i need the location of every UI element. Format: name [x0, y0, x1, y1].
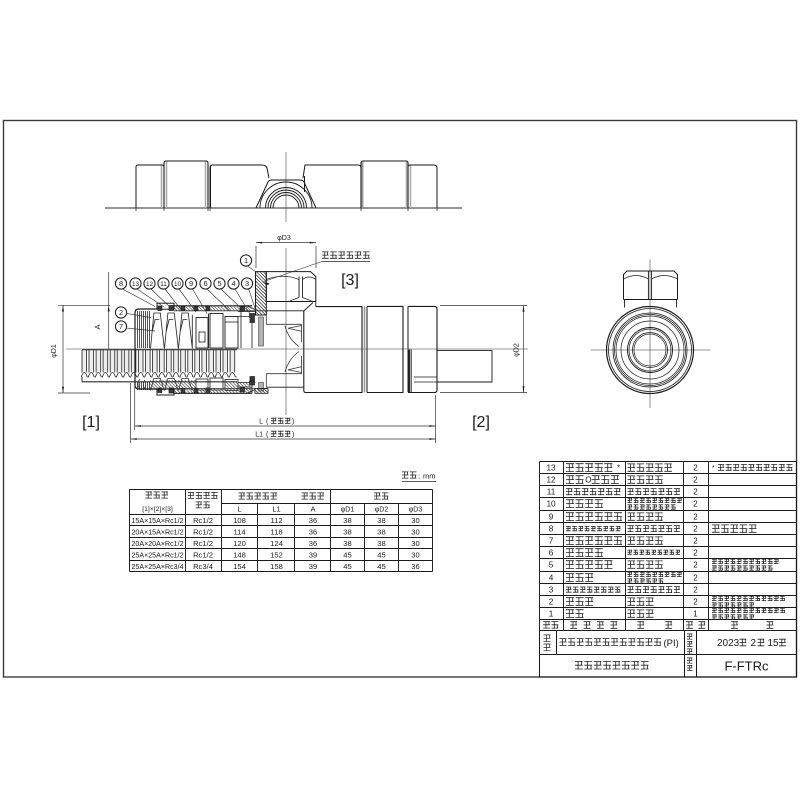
svg-text:20A×20A×Rc1/2: 20A×20A×Rc1/2: [131, 540, 183, 548]
svg-text:Rc1/2: Rc1/2: [193, 528, 213, 537]
svg-text:148: 148: [233, 551, 246, 560]
svg-text:7: 7: [549, 537, 554, 546]
svg-text:*: *: [712, 465, 715, 472]
svg-text:1: 1: [693, 610, 698, 619]
svg-text:30: 30: [411, 539, 419, 548]
svg-text:38: 38: [343, 516, 351, 525]
svg-text:2: 2: [693, 586, 698, 595]
svg-text:38: 38: [343, 528, 351, 537]
svg-text:7: 7: [119, 322, 123, 331]
svg-text:13: 13: [546, 464, 556, 473]
svg-text:[1]×[2]×[3]: [1]×[2]×[3]: [142, 506, 173, 513]
svg-text:4: 4: [549, 574, 554, 583]
svg-text:36: 36: [411, 562, 419, 571]
svg-text:2: 2: [693, 598, 698, 607]
svg-text:2: 2: [693, 561, 698, 570]
svg-text:11: 11: [160, 281, 167, 288]
svg-text:158: 158: [270, 562, 283, 571]
svg-text:25A×25A×Rc3/4: 25A×25A×Rc3/4: [131, 563, 183, 571]
svg-text:L1: L1: [255, 432, 263, 439]
svg-text:20A×15A×Rc1/2: 20A×15A×Rc1/2: [131, 529, 183, 537]
svg-text:Rc3/4: Rc3/4: [193, 562, 213, 571]
svg-text:38: 38: [343, 539, 351, 548]
svg-text:36: 36: [309, 516, 317, 525]
svg-text:13: 13: [132, 281, 140, 288]
svg-text:124: 124: [270, 539, 283, 548]
svg-text:9: 9: [549, 513, 554, 522]
svg-text:2: 2: [693, 513, 698, 522]
svg-text:): ): [292, 432, 294, 439]
svg-text:2: 2: [693, 537, 698, 546]
svg-text:φD1: φD1: [51, 344, 58, 358]
svg-text:30: 30: [411, 551, 419, 560]
svg-text:2: 2: [693, 549, 698, 558]
svg-text:45: 45: [343, 551, 351, 560]
svg-text:15A×15A×Rc1/2: 15A×15A×Rc1/2: [131, 517, 183, 525]
svg-text:*: *: [617, 464, 620, 473]
svg-text:φD2: φD2: [514, 343, 521, 357]
svg-text:2: 2: [693, 464, 698, 473]
svg-text:(PI): (PI): [664, 638, 679, 649]
svg-text:mm: mm: [423, 472, 436, 481]
svg-text:2: 2: [693, 525, 698, 534]
svg-text:39: 39: [309, 551, 317, 560]
svg-text:1: 1: [549, 610, 554, 619]
svg-text:12: 12: [546, 476, 556, 485]
svg-text:30: 30: [411, 528, 419, 537]
svg-text:4: 4: [231, 279, 235, 288]
svg-text:11: 11: [547, 488, 556, 497]
svg-text:45: 45: [377, 551, 385, 560]
svg-text:15: 15: [768, 638, 780, 649]
svg-text:2: 2: [693, 500, 698, 509]
svg-text:6: 6: [549, 549, 554, 558]
svg-text:Rc1/2: Rc1/2: [193, 551, 213, 560]
svg-text:38: 38: [377, 528, 385, 537]
svg-text:5: 5: [549, 561, 554, 570]
svg-text:2: 2: [549, 598, 554, 607]
svg-text:25A×25A×Rc1/2: 25A×25A×Rc1/2: [131, 552, 183, 560]
svg-text:39: 39: [309, 562, 317, 571]
svg-text:L: L: [259, 419, 263, 426]
svg-text:8: 8: [119, 279, 123, 288]
svg-text:2: 2: [119, 308, 123, 317]
svg-text:φD3: φD3: [277, 235, 291, 242]
svg-text:8: 8: [549, 525, 554, 534]
svg-text:5: 5: [217, 279, 221, 288]
svg-text:Rc1/2: Rc1/2: [193, 539, 213, 548]
svg-text:φD1: φD1: [341, 507, 355, 514]
svg-text:2: 2: [693, 574, 698, 583]
svg-text:): ): [292, 419, 294, 426]
svg-text:152: 152: [270, 551, 283, 560]
svg-text:6: 6: [203, 279, 207, 288]
svg-text:2: 2: [751, 638, 757, 649]
svg-text:1: 1: [244, 256, 248, 265]
svg-text:A: A: [310, 505, 315, 514]
svg-text:A: A: [93, 324, 102, 329]
svg-text:9: 9: [189, 279, 193, 288]
svg-text:L: L: [237, 505, 241, 514]
svg-text:10: 10: [546, 500, 556, 509]
svg-text:2023: 2023: [717, 638, 740, 649]
svg-text:154: 154: [233, 562, 246, 571]
svg-text:112: 112: [270, 516, 282, 525]
svg-text:36: 36: [309, 539, 317, 548]
svg-text:120: 120: [233, 539, 246, 548]
svg-text:[1]: [1]: [82, 414, 100, 431]
svg-text:L1: L1: [272, 505, 280, 514]
svg-text:45: 45: [377, 562, 385, 571]
svg-text:F-FTRc: F-FTRc: [724, 659, 769, 674]
svg-text:[2]: [2]: [472, 414, 490, 431]
svg-text:30: 30: [411, 516, 419, 525]
svg-text:2: 2: [693, 476, 698, 485]
svg-text:108: 108: [233, 516, 246, 525]
svg-text:2: 2: [693, 488, 698, 497]
svg-text:3: 3: [549, 586, 554, 595]
svg-text:118: 118: [270, 528, 282, 537]
svg-text:3: 3: [245, 279, 249, 288]
svg-text:φD2: φD2: [375, 507, 389, 514]
svg-text:[3]: [3]: [341, 272, 359, 289]
svg-text:10: 10: [174, 281, 182, 288]
svg-text:O: O: [585, 476, 591, 485]
svg-text:38: 38: [377, 539, 385, 548]
svg-text:12: 12: [146, 281, 154, 288]
svg-text:Rc1/2: Rc1/2: [193, 516, 213, 525]
svg-text:114: 114: [233, 528, 245, 537]
svg-text:45: 45: [343, 562, 351, 571]
svg-text:φD3: φD3: [409, 507, 423, 514]
svg-text:36: 36: [309, 528, 317, 537]
svg-text:38: 38: [377, 516, 385, 525]
svg-text::: :: [418, 472, 420, 481]
